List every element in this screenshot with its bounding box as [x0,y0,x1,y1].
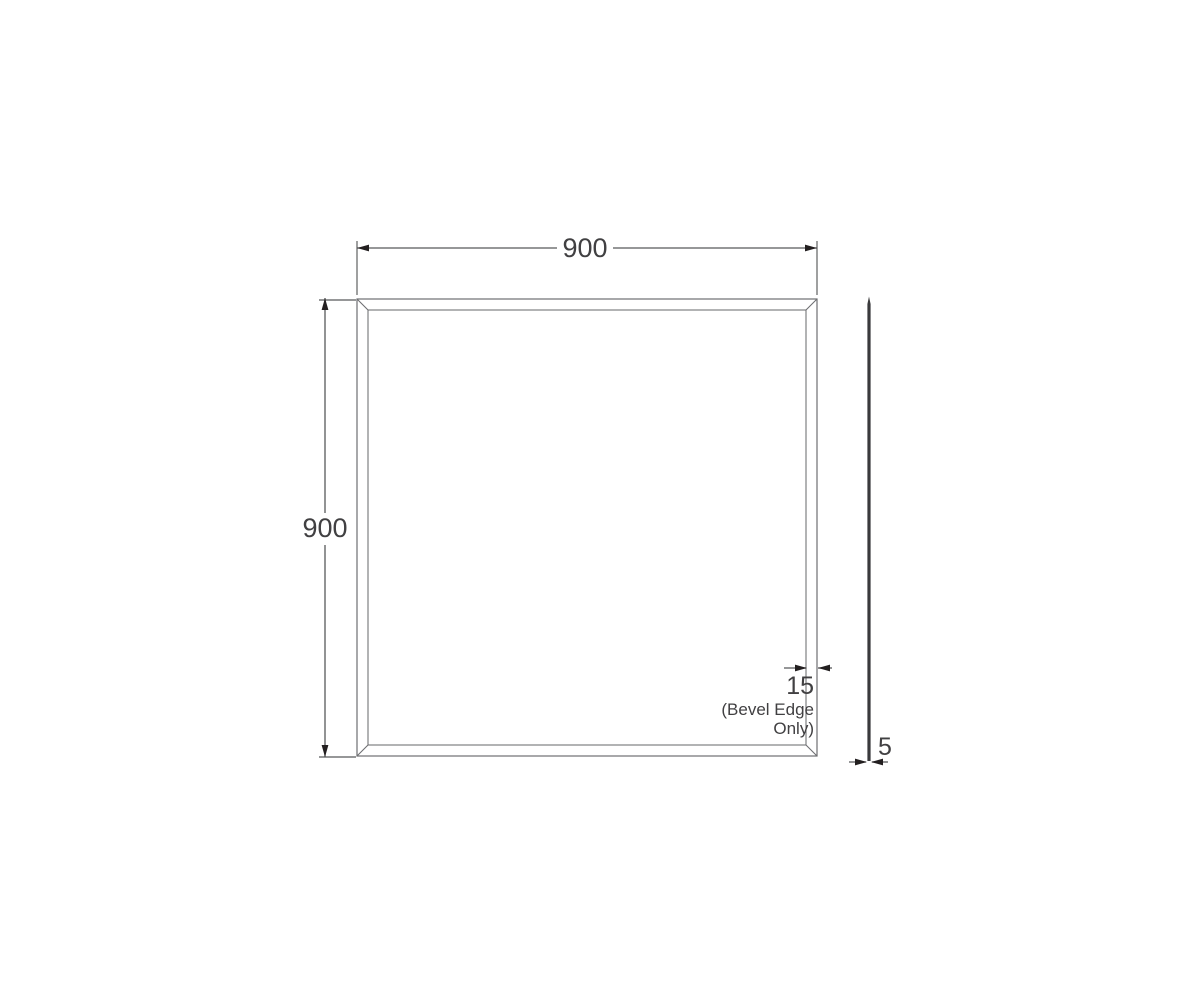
arrow-left-icon [818,665,830,672]
bevel-corner-line-bottom-left [357,745,368,756]
bevel-dimension: 15 (Bevel Edge Only) [721,665,832,738]
bevel-note-line-2: Only) [773,719,814,738]
width-dimension-label: 900 [562,233,607,263]
mirror-outer-edge [357,299,817,756]
width-dimension: 900 [357,233,817,295]
bevel-note-line-1: (Bevel Edge [721,700,814,719]
mirror-bevel-inner-edge [368,310,806,745]
bevel-corner-line-top-left [357,299,368,310]
bevel-dimension-label: 15 [786,672,814,700]
arrow-right-icon [795,665,807,672]
arrow-right-icon [855,759,867,766]
arrow-down-icon [322,745,329,757]
mirror-dimension-drawing: 900 900 15 (Bevel Edge Only) [0,0,1194,998]
thickness-dimension-label: 5 [878,733,892,761]
height-dimension: 900 [302,298,356,757]
arrow-left-icon [357,245,369,252]
mirror-front-view [357,299,817,756]
bevel-corner-line-top-right [806,299,817,310]
side-profile-line [867,297,870,762]
mirror-side-profile-view [867,297,870,762]
bevel-corner-line-bottom-right [806,745,817,756]
height-dimension-label: 900 [302,513,347,543]
drawing-canvas: 900 900 15 (Bevel Edge Only) [0,0,1194,998]
arrow-right-icon [805,245,817,252]
